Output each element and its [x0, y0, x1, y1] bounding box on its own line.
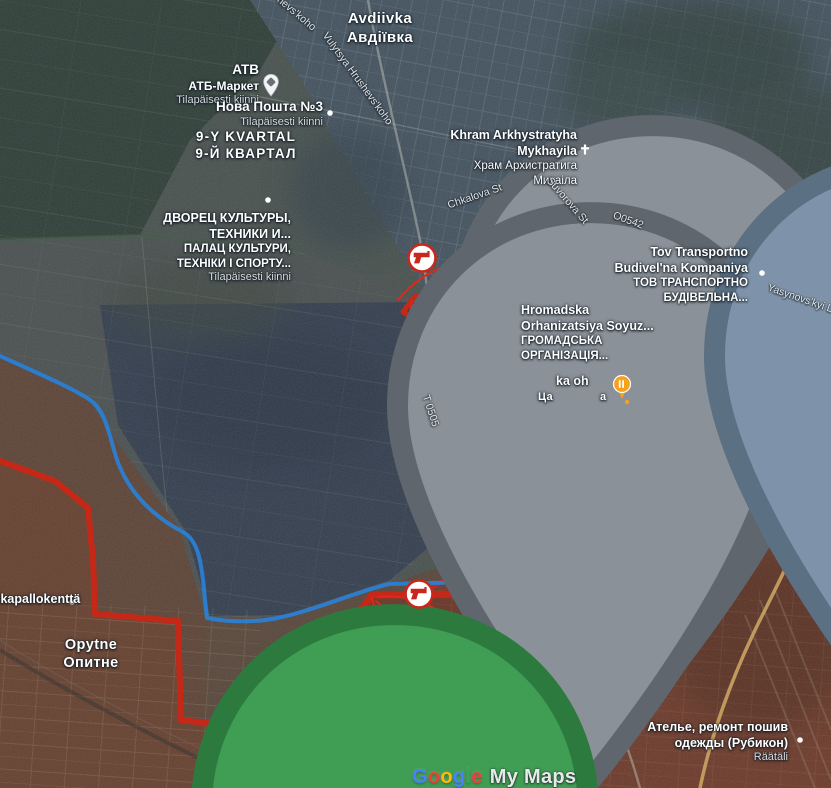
poi-label-palace-of-culture: ДВОРЕЦ КУЛЬТУРЫ, ТЕХНИКИ И... ПАЛАЦ КУЛЬ…	[163, 211, 291, 285]
poi-label-tsarska-fragment: а	[600, 391, 606, 405]
town-label-avdiivka: Avdiivka Авдіївка	[347, 10, 413, 48]
clash-marker-2[interactable]	[406, 581, 433, 608]
clash-marker-1[interactable]	[409, 245, 436, 272]
poi-label-tov-transportno: Tov Transportno Budivel'na Kompaniya ТОВ…	[614, 245, 748, 305]
poi-label-tsarska-fragment: Ца	[538, 391, 553, 405]
satellite-map	[0, 0, 831, 788]
town-label-opytne: Opytne Опитне	[63, 636, 118, 672]
poi-label-nova-poshta: Нова Пошта №3 Tilapäisesti kiinni	[216, 99, 323, 130]
google-logo: Google	[412, 766, 483, 788]
poi-label-khram: Khram Arkhystratyha Mykhayila Храм Архис…	[450, 128, 577, 188]
poi-label-atelier: Ателье, ремонт пошив одежды (Рубикон) Rä…	[647, 720, 788, 765]
poi-label-hromadska: Hromadska Orhanizatsiya Soyuz... ГРОМАДС…	[521, 303, 654, 363]
map-canvas[interactable]: Avdiivka Авдіївка Opytne Опитне 9-Y KVAR…	[0, 0, 831, 788]
poi-label-tsarska-fragment: ka oh	[556, 374, 589, 390]
my-maps-label: My Maps	[490, 766, 577, 788]
google-my-maps-watermark: GoogleMy Maps	[412, 766, 576, 788]
poi-label-football-field: lkapallokenttä	[0, 592, 80, 608]
district-label-9th-kvartal: 9-Y KVARTAL 9-Й КВАРТАЛ	[195, 129, 296, 163]
